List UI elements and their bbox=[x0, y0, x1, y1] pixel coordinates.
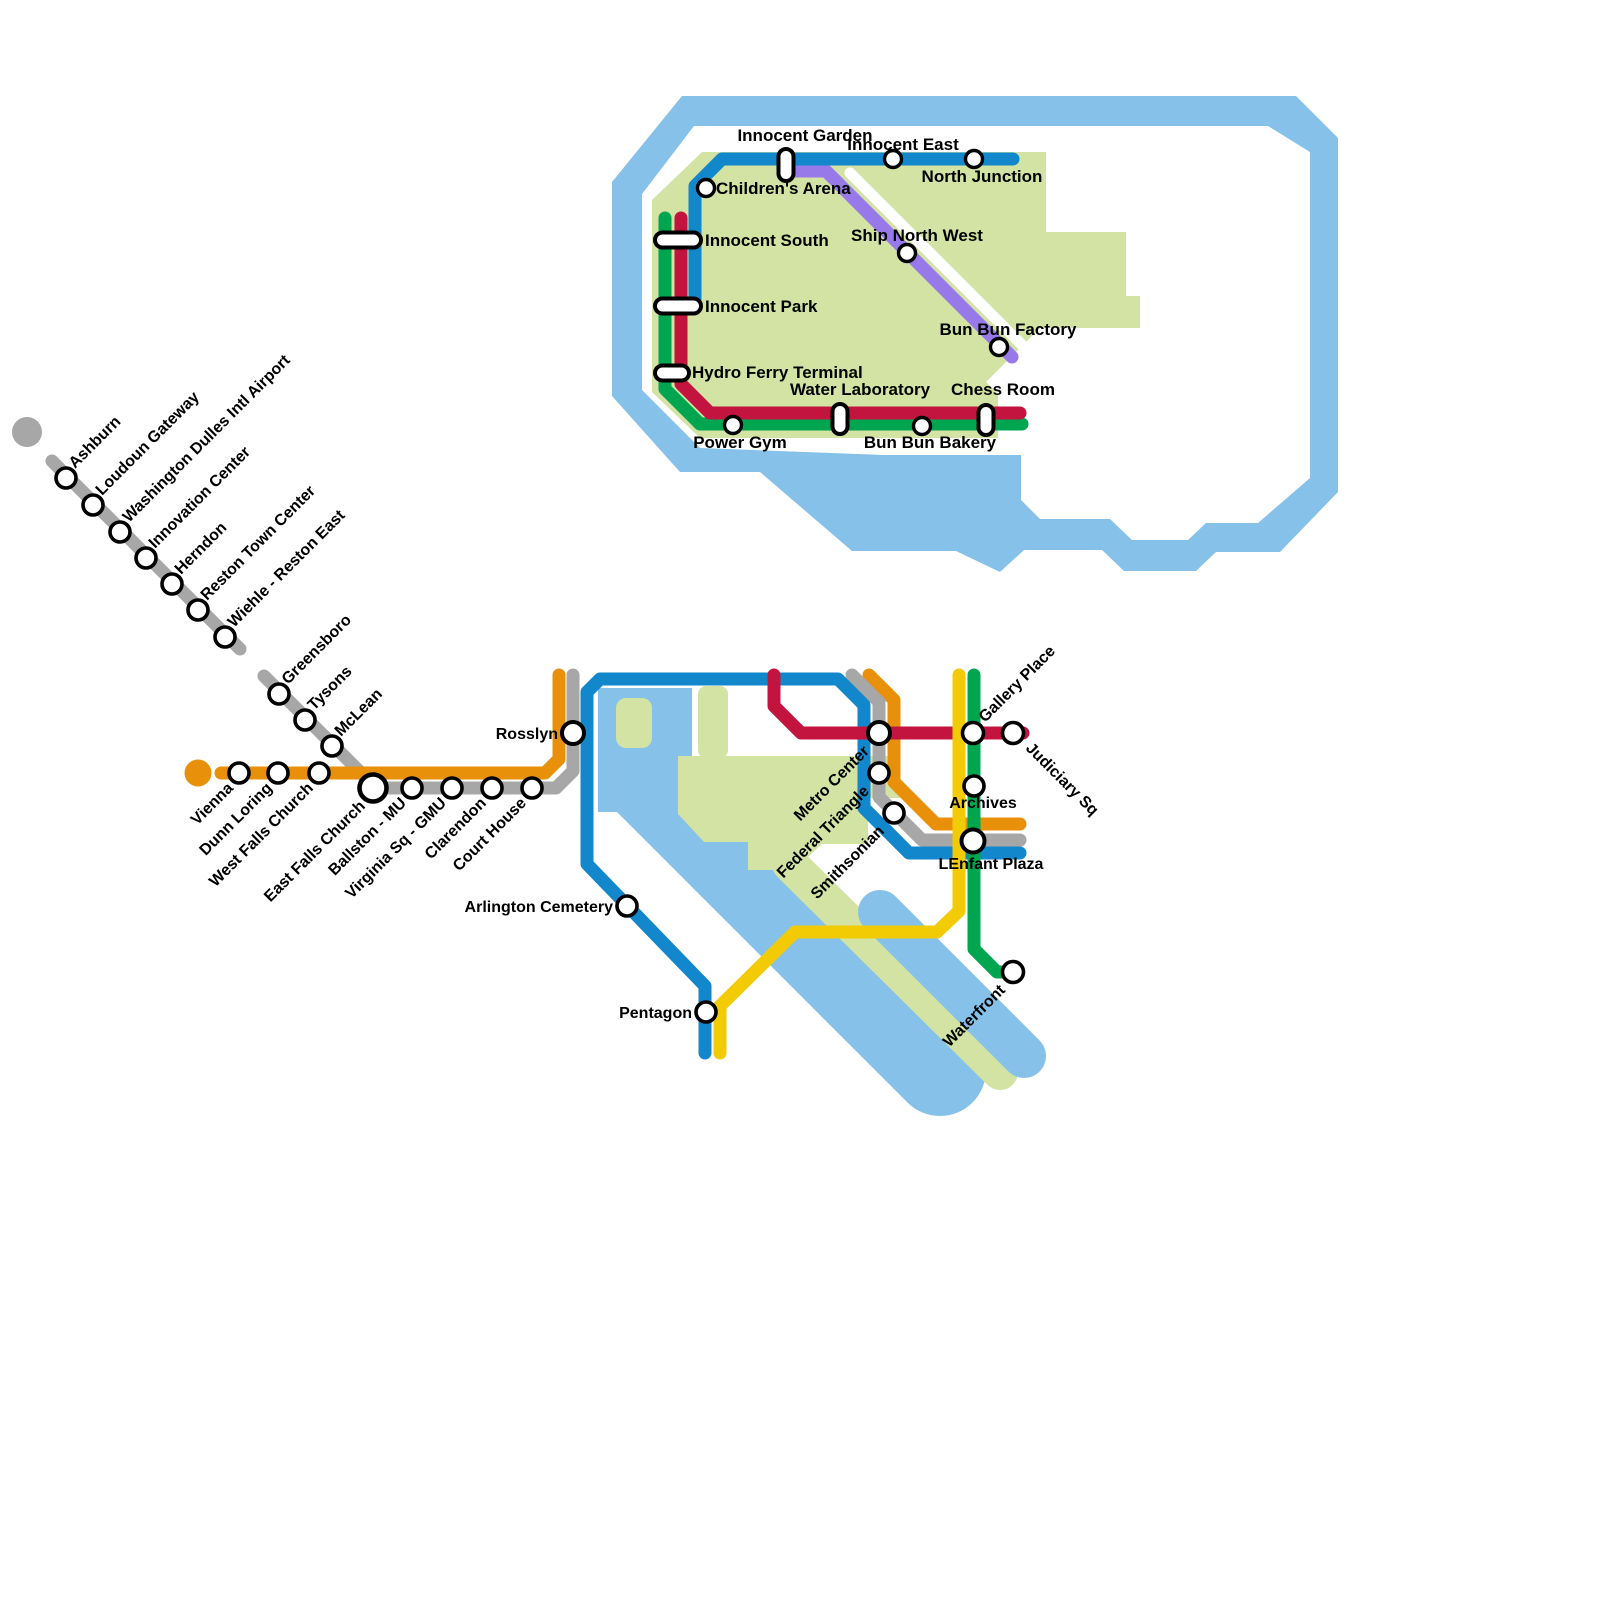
station-marker-reston-town-center bbox=[188, 600, 208, 620]
station-marker-rosslyn bbox=[562, 722, 584, 744]
station-marker-federal-triangle bbox=[869, 763, 889, 783]
station-marker-water-laboratory bbox=[833, 404, 848, 434]
station-marker-vienna bbox=[229, 763, 249, 783]
station-label-children-s-arena: Children's Arena bbox=[716, 179, 851, 198]
station-label-innocent-park: Innocent Park bbox=[705, 297, 818, 316]
station-label-innocent-south: Innocent South bbox=[705, 231, 829, 250]
station-marker-innocent-south bbox=[655, 233, 701, 248]
station-marker-lenfant-plaza bbox=[962, 830, 985, 853]
station-marker-court-house bbox=[522, 778, 542, 798]
station-marker-smithsonian bbox=[884, 803, 904, 823]
station-label-lenfant-plaza: LEnfant Plaza bbox=[939, 856, 1044, 873]
station-label-rosslyn: Rosslyn bbox=[496, 726, 558, 743]
station-label-ship-north-west: Ship North West bbox=[851, 226, 983, 245]
station-marker-innocent-park bbox=[655, 299, 701, 314]
station-marker-bun-bun-bakery bbox=[914, 418, 931, 435]
station-label-innocent-east: Innocent East bbox=[847, 135, 959, 154]
station-marker-waterfront bbox=[1003, 962, 1024, 983]
silver-line-terminal-dot bbox=[12, 417, 42, 447]
metro-map: Innocent GardenInnocent EastNorth Juncti… bbox=[0, 0, 1600, 1600]
orange-line-terminal-dot bbox=[185, 760, 212, 787]
station-label-gallery-place: Gallery Place bbox=[976, 643, 1059, 726]
station-label-water-laboratory: Water Laboratory bbox=[790, 380, 931, 399]
station-marker-east-falls-church bbox=[360, 775, 387, 802]
station-marker-dunn-loring bbox=[268, 763, 288, 783]
station-marker-chess-room bbox=[979, 405, 994, 435]
station-marker-bun-bun-factory bbox=[991, 339, 1008, 356]
station-label-innovation-center: Innovation Center bbox=[146, 444, 254, 552]
station-marker-virginia-sq-gmu bbox=[442, 778, 462, 798]
station-label-archives: Archives bbox=[949, 795, 1017, 812]
mall-land-column bbox=[698, 686, 728, 758]
station-marker-loudoun-gateway bbox=[83, 495, 103, 515]
station-label-power-gym: Power Gym bbox=[693, 433, 787, 452]
station-label-judiciary-sq: Judiciary Sq bbox=[1022, 740, 1101, 819]
metro-map-svg: Innocent GardenInnocent EastNorth Juncti… bbox=[0, 0, 1600, 1600]
station-label-arlington-cemetery: Arlington Cemetery bbox=[465, 899, 614, 916]
station-label-pentagon: Pentagon bbox=[619, 1005, 692, 1022]
station-marker-power-gym bbox=[725, 417, 742, 434]
station-marker-gallery-place bbox=[963, 723, 984, 744]
station-marker-clarendon bbox=[482, 778, 502, 798]
station-marker-pentagon bbox=[696, 1002, 716, 1022]
station-label-mclean: McLean bbox=[332, 686, 386, 740]
station-marker-herndon bbox=[162, 574, 182, 594]
station-marker-ballston-mu bbox=[402, 778, 422, 798]
station-marker-mclean bbox=[322, 736, 342, 756]
station-marker-west-falls-church bbox=[309, 763, 329, 783]
station-marker-greensboro bbox=[269, 684, 289, 704]
station-marker-archives bbox=[964, 776, 984, 796]
station-label-loudoun-gateway: Loudoun Gateway bbox=[93, 389, 203, 499]
station-marker-washington-dulles-intl-airport bbox=[110, 522, 130, 542]
station-marker-ashburn bbox=[56, 468, 76, 488]
station-marker-wiehle-reston-east bbox=[215, 627, 235, 647]
station-marker-north-junction bbox=[966, 151, 983, 168]
station-label-chess-room: Chess Room bbox=[951, 380, 1055, 399]
station-marker-ship-north-west bbox=[899, 245, 916, 262]
station-marker-arlington-cemetery bbox=[617, 896, 637, 916]
roosevelt-island bbox=[616, 698, 652, 748]
station-marker-tysons bbox=[295, 710, 315, 730]
station-marker-innocent-garden bbox=[779, 149, 794, 181]
station-marker-metro-center bbox=[868, 722, 890, 744]
station-label-north-junction: North Junction bbox=[922, 167, 1043, 186]
station-label-tysons: Tysons bbox=[305, 663, 356, 714]
station-marker-children-s-arena bbox=[698, 180, 715, 197]
station-marker-judiciary-sq bbox=[1003, 723, 1024, 744]
station-label-bun-bun-factory: Bun Bun Factory bbox=[940, 320, 1077, 339]
station-marker-hydro-ferry-terminal bbox=[655, 366, 689, 381]
station-label-bun-bun-bakery: Bun Bun Bakery bbox=[864, 433, 997, 452]
station-marker-innovation-center bbox=[136, 548, 156, 568]
